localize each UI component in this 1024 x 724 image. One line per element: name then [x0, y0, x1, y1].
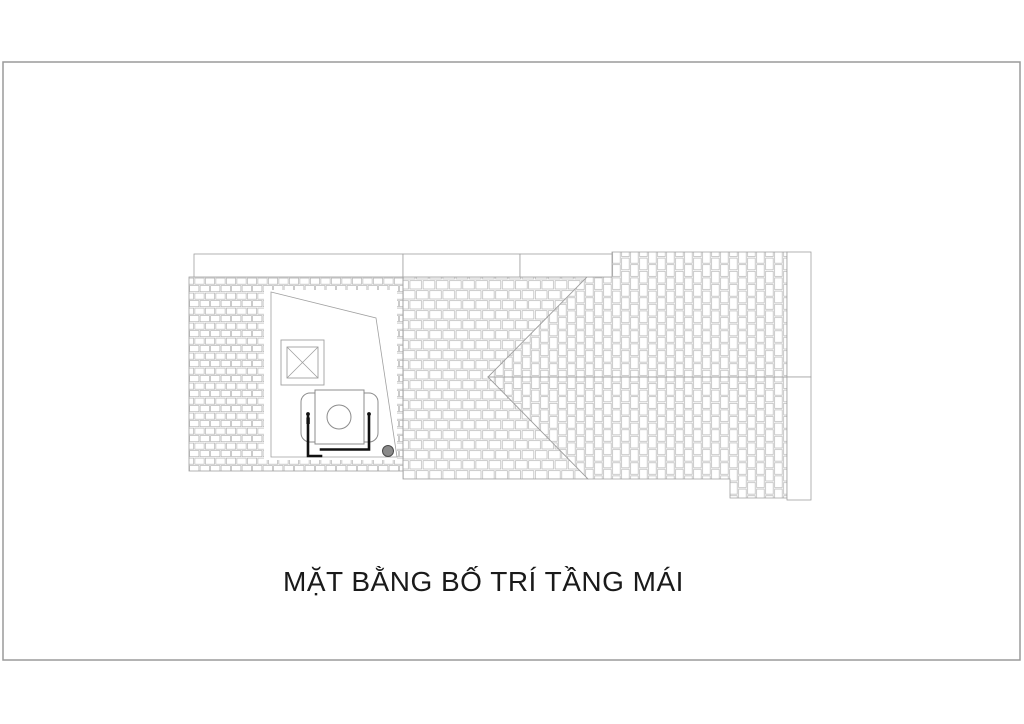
pipe-right-joint-dot [367, 412, 371, 416]
top-eave-band-right [520, 254, 612, 277]
pipe-left-joint-dot [306, 412, 310, 416]
water-tank [301, 390, 378, 444]
right-gutter-upper [787, 252, 811, 377]
top-eave-band-left [194, 254, 403, 277]
top-eave-band-middle [403, 254, 520, 277]
floor-drain [383, 446, 394, 457]
pipe-valve [306, 418, 309, 425]
drawing-title: MẶT BẰNG BỐ TRÍ TẦNG MÁI [283, 566, 684, 598]
water-tank-lid [327, 405, 351, 429]
right-gutter-lower [787, 377, 811, 500]
skylight-shaft [281, 340, 324, 385]
roof-plan-drawing [0, 0, 1024, 724]
